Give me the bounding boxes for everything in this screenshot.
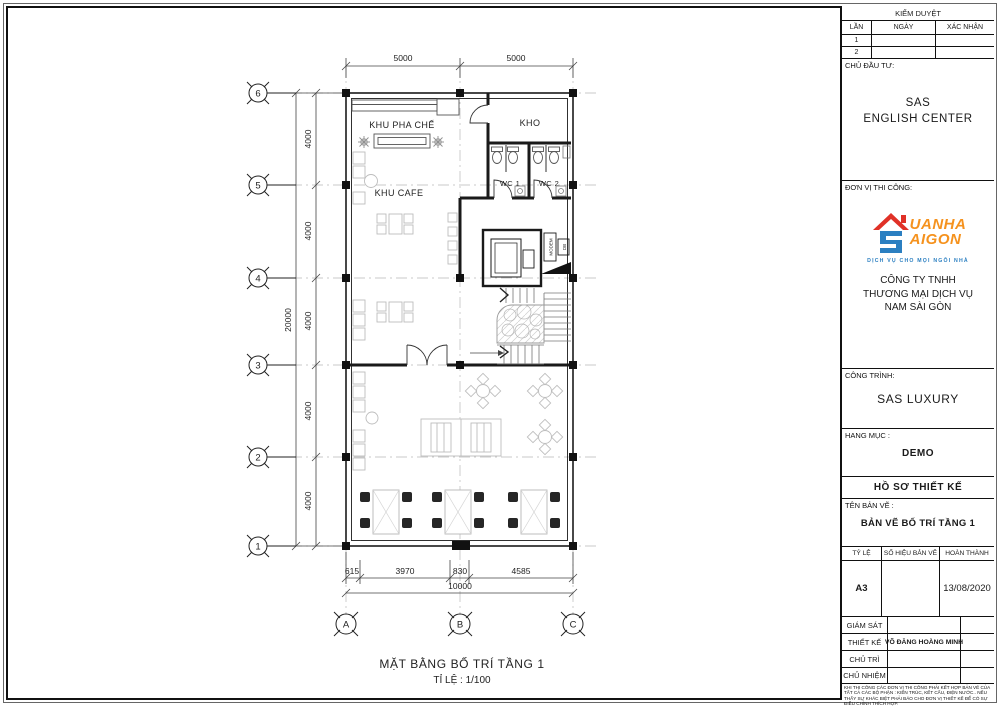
grid-row-5: 5 bbox=[255, 181, 260, 192]
drawing-label: TÊN BẢN VẼ : bbox=[842, 499, 994, 510]
grid-row-2: 2 bbox=[255, 453, 260, 464]
approval-col-no: LẦN bbox=[842, 21, 872, 34]
dim-top-1: 5000 bbox=[394, 53, 413, 63]
room-label-wc2: WC 2 bbox=[539, 179, 559, 188]
approval-col-date: NGÀY bbox=[872, 21, 936, 34]
category-label: HANG MỤC : bbox=[842, 429, 994, 440]
company-line1: CÔNG TY TNHH bbox=[842, 274, 994, 288]
grid-row-1: 1 bbox=[255, 542, 260, 553]
investor-label: CHỦ ĐẦU TƯ: bbox=[842, 59, 994, 70]
dim-bottom-2: 3970 bbox=[396, 566, 415, 576]
logo-word-1: UANHA bbox=[910, 217, 967, 232]
contractor-logo: UANHA AIGON DỊCH VỤ CHO MỌI NGÔI NHÀ bbox=[842, 208, 994, 264]
planter bbox=[497, 305, 544, 343]
staff-row-chu-nhiem: CHỦ NHIỆM bbox=[842, 668, 994, 684]
dim-left-2: 4000 bbox=[303, 221, 313, 240]
company-line3: NAM SÀI GÒN bbox=[842, 301, 994, 315]
grid-row-3: 3 bbox=[255, 361, 260, 372]
logo-word-2: AIGON bbox=[910, 232, 967, 247]
company-line2: THƯƠNG MẠI DỊCH VỤ bbox=[842, 288, 994, 302]
meta-col-scale: TỶ LỆ bbox=[842, 547, 882, 560]
title-block: KIỂM DUYỆT LẦN NGÀY XÁC NHẬN 1 2 CHỦ ĐẦU… bbox=[840, 6, 994, 700]
contractor-label: ĐƠN VỊ THI CÔNG: bbox=[842, 181, 994, 192]
plan-title: MẶT BẰNG BỐ TRÍ TẦNG 1 bbox=[379, 656, 544, 671]
cafe-furniture bbox=[353, 152, 501, 470]
investor-name-line1: SAS bbox=[906, 96, 931, 112]
dim-left-3: 4000 bbox=[303, 311, 313, 330]
dim-top-2: 5000 bbox=[507, 53, 526, 63]
approval-title: KIỂM DUYỆT bbox=[842, 6, 994, 21]
staff-row-giam-sat: GIÁM SÁT bbox=[842, 617, 994, 634]
drawing-name: BẢN VẼ BỐ TRÍ TẦNG 1 bbox=[842, 510, 994, 536]
drawing-sheet: 5000 5000 4000 4000 4000 4000 4000 20000… bbox=[0, 0, 1000, 706]
dim-bottom-total: 10000 bbox=[448, 581, 472, 591]
staff-row-thiet-ke: THIẾT KẾ VÕ ĐĂNG HOÀNG MINH bbox=[842, 634, 994, 651]
elevator bbox=[483, 230, 571, 286]
plan-scale: TỈ LỆ : 1/100 bbox=[433, 673, 491, 686]
room-label-khu-cafe: KHU CAFE bbox=[375, 188, 424, 198]
dim-left-1: 4000 bbox=[303, 129, 313, 148]
room-label-wc1: WC 1 bbox=[500, 179, 520, 188]
meta-number-value bbox=[882, 561, 940, 616]
investor-name-line2: ENGLISH CENTER bbox=[863, 112, 972, 128]
dim-bottom-3: 830 bbox=[453, 566, 467, 576]
grid-row-4: 4 bbox=[255, 274, 260, 285]
room-label-kho: KHO bbox=[520, 118, 541, 128]
db-label: DB bbox=[562, 244, 567, 250]
approval-row-1: 1 bbox=[842, 35, 872, 46]
dim-left-5: 4000 bbox=[303, 491, 313, 510]
meta-col-number: SỐ HIỆU BẢN VẼ bbox=[882, 547, 940, 560]
approval-row-2: 2 bbox=[842, 47, 872, 58]
floor-plan: 5000 5000 4000 4000 4000 4000 4000 20000… bbox=[0, 0, 840, 706]
grid-bubbles bbox=[247, 82, 585, 636]
meta-scale-value: A3 bbox=[842, 561, 882, 616]
meta-done-value: 13/08/2020 bbox=[940, 561, 994, 616]
meta-col-done: HOÀN THÀNH bbox=[940, 547, 994, 560]
grid-col-a: A bbox=[343, 620, 350, 631]
staff-row-chu-tri: CHỦ TRÌ bbox=[842, 651, 994, 668]
grid-col-b: B bbox=[457, 620, 463, 631]
project-name: SAS LUXURY bbox=[842, 380, 994, 418]
logo-tagline: DỊCH VỤ CHO MỌI NGÔI NHÀ bbox=[867, 258, 969, 264]
room-label-khu-pha-che: KHU PHA CHẾ bbox=[369, 120, 434, 130]
grid-col-c: C bbox=[570, 620, 577, 631]
approval-col-confirm: XÁC NHẬN bbox=[936, 21, 994, 34]
dim-bottom-4: 4585 bbox=[512, 566, 531, 576]
modem-label: MODEM bbox=[549, 238, 554, 256]
dim-left-total: 20000 bbox=[283, 308, 293, 332]
category-value: DEMO bbox=[842, 440, 994, 466]
dossier-title: HỒ SƠ THIẾT KẾ bbox=[842, 477, 994, 499]
dim-bottom-1: 615 bbox=[345, 566, 359, 576]
construction-note: KHI THI CÔNG CÁC ĐƠN VỊ THI CÔNG PHẢI KẾ… bbox=[842, 684, 994, 706]
house-logo-icon bbox=[870, 208, 912, 256]
dim-left-4: 4000 bbox=[303, 401, 313, 420]
wc-sinks bbox=[515, 146, 570, 196]
project-label: CÔNG TRÌNH: bbox=[842, 369, 994, 380]
grid-row-6: 6 bbox=[255, 89, 260, 100]
